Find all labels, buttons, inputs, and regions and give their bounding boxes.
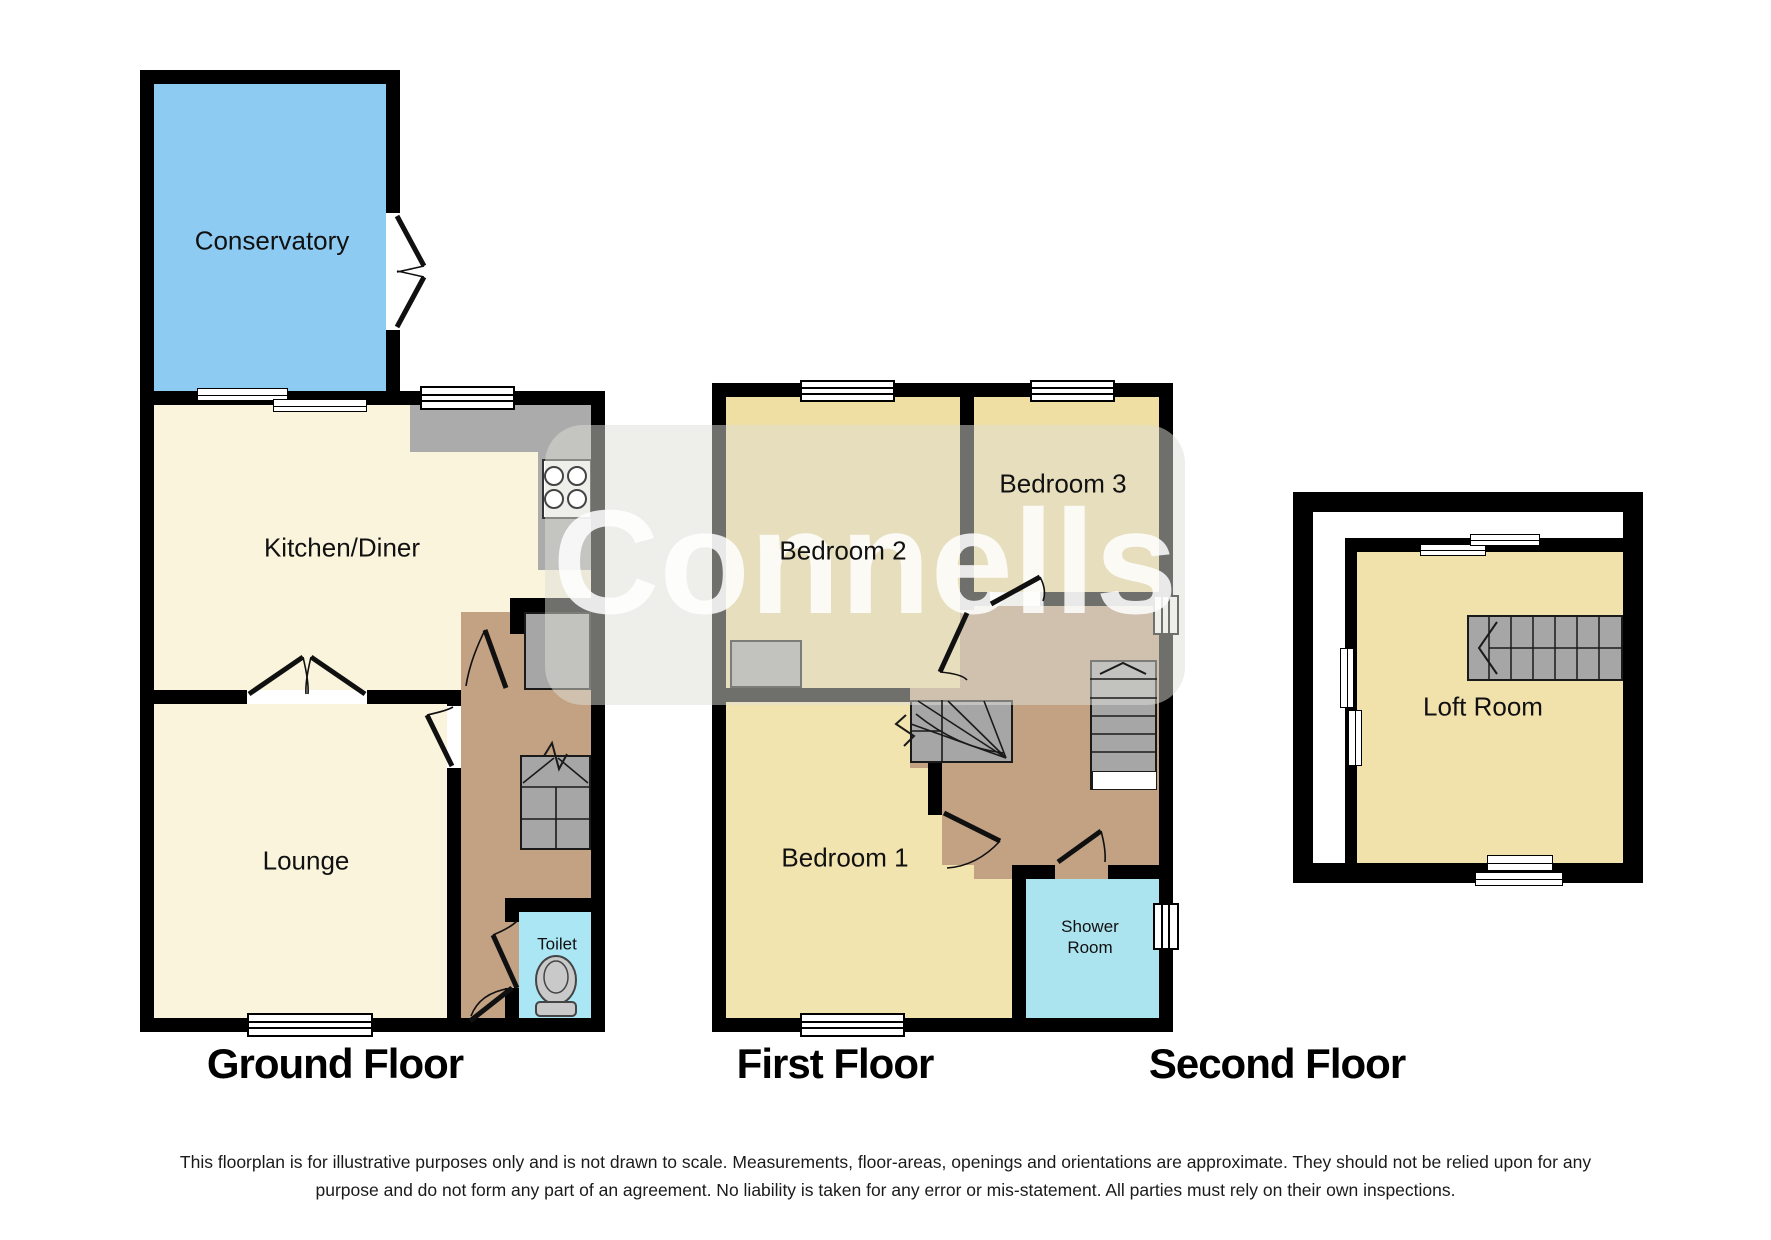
title-second-floor: Second Floor [1149, 1040, 1405, 1088]
wall-segment [1623, 492, 1643, 883]
label-loft-room: Loft Room [1423, 692, 1543, 723]
label-shower-room: Shower Room [1061, 916, 1119, 958]
label-bedroom-1: Bedroom 1 [781, 843, 908, 874]
window [420, 386, 515, 410]
disclaimer-line-1: This floorplan is for illustrative purpo… [0, 1152, 1771, 1173]
label-kitchen-diner: Kitchen/Diner [264, 533, 420, 564]
window [1475, 872, 1563, 886]
wall-segment [140, 690, 247, 704]
window [1030, 380, 1115, 402]
sliding-door [273, 399, 367, 412]
window [1348, 710, 1362, 766]
window [1487, 855, 1553, 871]
label-lounge: Lounge [263, 846, 350, 877]
window [800, 1013, 905, 1037]
wall-segment [1108, 865, 1173, 879]
wall-segment [505, 988, 519, 1018]
label-conservatory: Conservatory [195, 226, 350, 257]
winder-stairs [910, 700, 1013, 763]
window [800, 380, 895, 402]
title-first-floor: First Floor [737, 1040, 934, 1088]
window [1340, 648, 1354, 708]
wall-segment [510, 612, 524, 634]
label-toilet: Toilet [537, 934, 577, 955]
landing-floor [942, 763, 1012, 865]
wall-segment [1293, 492, 1313, 883]
wall-segment [928, 763, 942, 815]
stairs-landing-step [1092, 771, 1157, 790]
wall-segment [140, 70, 400, 84]
wall-segment [505, 898, 519, 922]
room-toilet [519, 912, 591, 1018]
wall-segment [447, 690, 461, 706]
french-doors [397, 216, 424, 327]
label-shower-line1: Shower [1061, 917, 1119, 936]
window [247, 1013, 373, 1037]
floorplan-canvas: Connells Conservatory Kitchen/Diner Loun… [0, 0, 1771, 1240]
label-shower-line2: Room [1067, 938, 1112, 957]
disclaimer-line-2: purpose and do not form any part of an a… [0, 1180, 1771, 1201]
title-ground-floor: Ground Floor [207, 1040, 463, 1088]
ground-stairs [520, 755, 591, 850]
wall-segment [140, 391, 154, 1032]
wall-segment [1293, 492, 1643, 512]
wall-segment [386, 70, 400, 213]
wall-segment [1293, 863, 1643, 883]
wall-segment [447, 768, 461, 1018]
wall-segment [1012, 865, 1055, 879]
label-bedroom-2: Bedroom 2 [779, 536, 906, 567]
wall-segment [367, 690, 447, 704]
wall-segment [140, 70, 154, 405]
window [1153, 903, 1179, 950]
loft-stairs [1467, 615, 1623, 681]
wall-segment [712, 1018, 1173, 1032]
window [1470, 534, 1540, 546]
wall-segment [1012, 879, 1026, 1018]
wall-segment [505, 898, 605, 912]
label-bedroom-3: Bedroom 3 [999, 469, 1126, 500]
